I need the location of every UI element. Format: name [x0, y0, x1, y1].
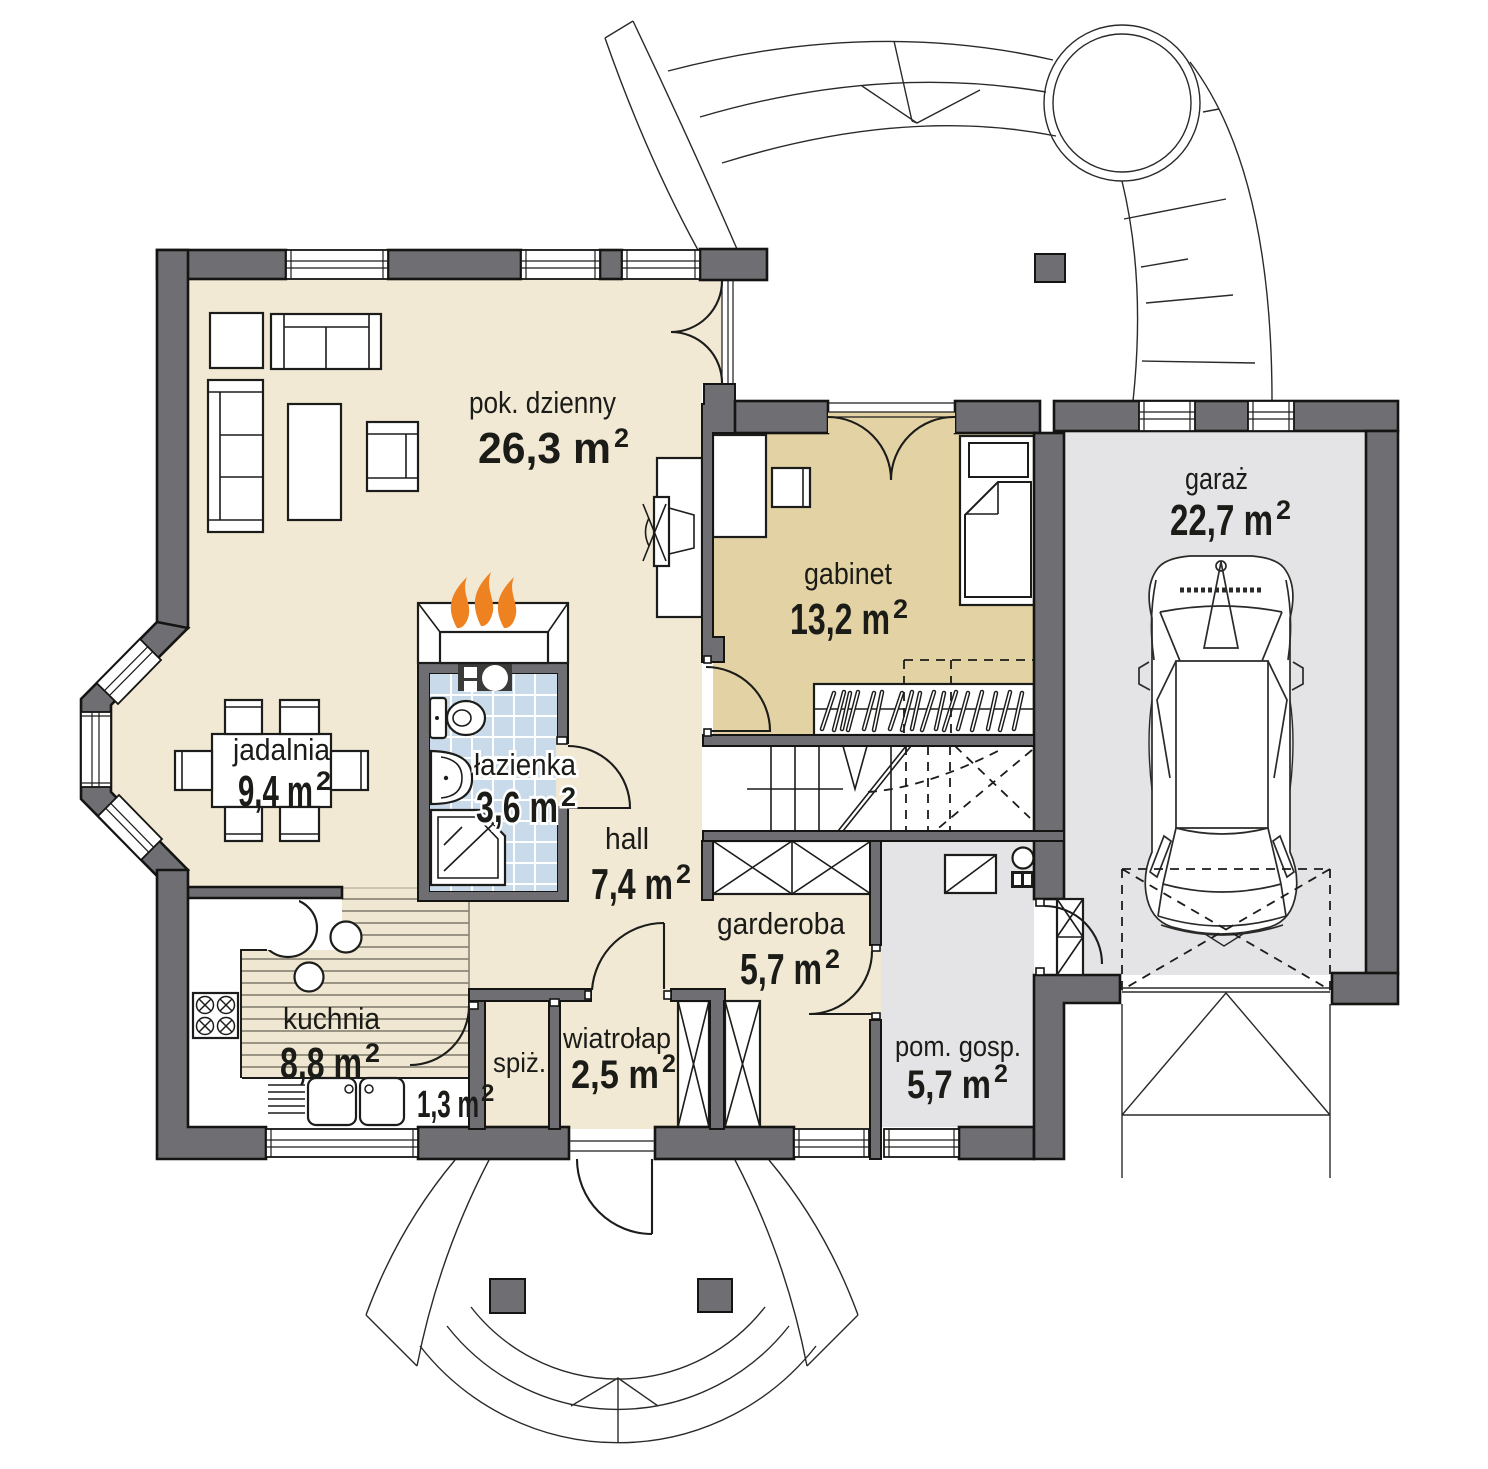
svg-text:jadalnia: jadalnia: [232, 732, 331, 767]
svg-text:wiatrołap: wiatrołap: [562, 1023, 671, 1055]
svg-text:hall: hall: [605, 821, 649, 856]
svg-text:5,7 m: 5,7 m: [740, 945, 822, 994]
svg-text:2: 2: [676, 859, 691, 889]
svg-text:7,4 m: 7,4 m: [591, 860, 673, 909]
svg-text:5,7 m: 5,7 m: [907, 1063, 991, 1107]
svg-text:2: 2: [481, 1080, 494, 1107]
svg-text:2,5 m: 2,5 m: [571, 1053, 659, 1097]
svg-text:2: 2: [561, 782, 576, 812]
svg-text:2: 2: [316, 766, 331, 796]
svg-text:pom. gosp.: pom. gosp.: [895, 1031, 1021, 1063]
svg-text:2: 2: [1276, 495, 1291, 525]
svg-text:22,7 m: 22,7 m: [1170, 496, 1273, 545]
svg-text:2: 2: [614, 423, 629, 453]
svg-text:8,8 m: 8,8 m: [280, 1039, 362, 1088]
svg-text:spiż.: spiż.: [493, 1047, 546, 1078]
svg-text:2: 2: [825, 944, 840, 974]
svg-text:2: 2: [893, 594, 908, 624]
svg-text:13,2 m: 13,2 m: [790, 595, 890, 644]
svg-text:9,4 m: 9,4 m: [238, 767, 313, 816]
svg-text:26,3 m: 26,3 m: [478, 424, 611, 473]
svg-text:2: 2: [994, 1060, 1008, 1088]
svg-text:garderoba: garderoba: [717, 906, 846, 941]
svg-text:1,3 m: 1,3 m: [417, 1084, 479, 1126]
svg-text:kuchnia: kuchnia: [283, 1001, 381, 1036]
svg-text:łazienka: łazienka: [474, 747, 577, 782]
svg-text:pok. dzienny: pok. dzienny: [469, 385, 616, 420]
svg-text:garaż: garaż: [1185, 461, 1248, 496]
svg-text:2: 2: [365, 1038, 380, 1068]
svg-text:gabinet: gabinet: [804, 556, 892, 591]
svg-text:2: 2: [662, 1050, 676, 1078]
svg-text:3,6 m: 3,6 m: [476, 783, 558, 832]
